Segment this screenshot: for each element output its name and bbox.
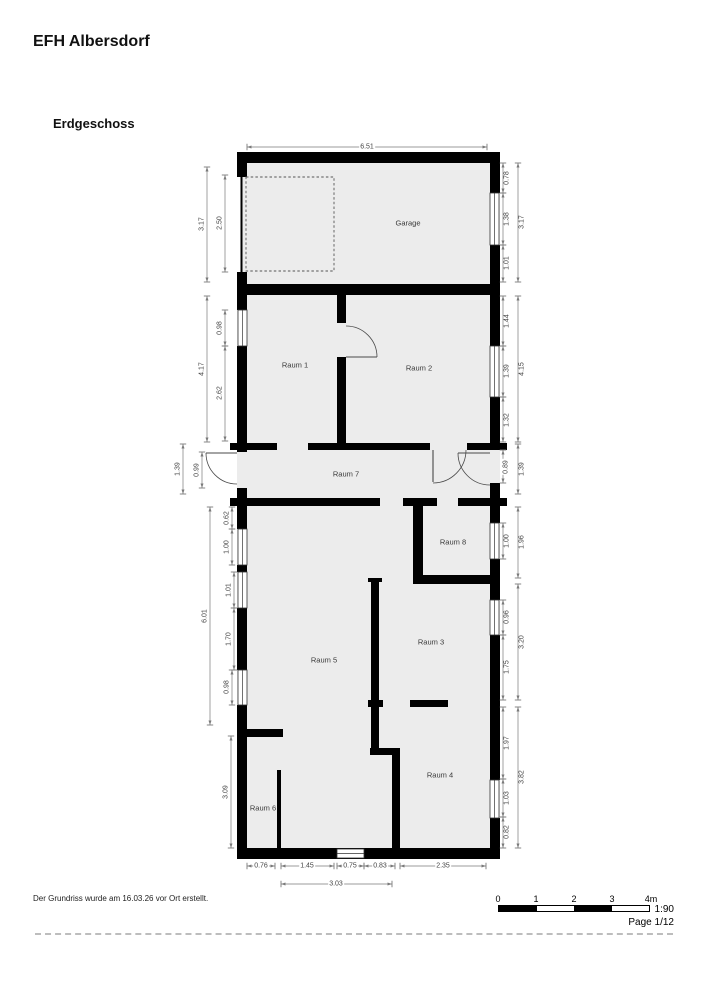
dim-label: 1.70 (226, 631, 233, 647)
dim-label: 0.96 (504, 609, 511, 625)
dim-label: 1.96 (519, 534, 526, 550)
scale-bar-graphic (498, 905, 650, 912)
dim-label: 1.03 (504, 790, 511, 806)
dim-label: 1.45 (299, 863, 315, 870)
scale-tick-label: 4m (645, 895, 658, 904)
dim-label: 0.98 (224, 679, 231, 695)
dim-label: 3.20 (519, 634, 526, 650)
dim-label: 0.82 (504, 824, 511, 840)
dim-label: 3.82 (519, 769, 526, 785)
dim-label: 0.62 (224, 510, 231, 526)
scale-tick-label: 2 (571, 895, 576, 904)
dim-label: 1.01 (226, 582, 233, 598)
dashed-separator (35, 933, 673, 935)
dim-label: 0.83 (372, 863, 388, 870)
room-label-raum3: Raum 3 (418, 638, 444, 646)
scale-tick-label: 0 (495, 895, 500, 904)
dim-label: 0.98 (217, 320, 224, 336)
dim-label: 2.62 (217, 385, 224, 401)
dim-label: 0.99 (194, 462, 201, 478)
dim-label: 4.17 (199, 361, 206, 377)
dim-label: 1.00 (224, 539, 231, 555)
dim-label: 1.39 (504, 363, 511, 379)
dim-label: 6.51 (359, 144, 375, 151)
dim-label: 3.03 (328, 881, 344, 888)
dim-label: 1.38 (504, 211, 511, 227)
dim-label: 1.32 (504, 412, 511, 428)
dim-label: 6.01 (202, 608, 209, 624)
scale-tick-label: 3 (609, 895, 614, 904)
room-label-raum7: Raum 7 (333, 470, 359, 478)
dim-label: 0.76 (253, 863, 269, 870)
garage-door-opening (237, 177, 243, 272)
room-label-raum5: Raum 5 (311, 656, 337, 664)
dim-label: 2.50 (217, 215, 224, 231)
dim-label: 3.09 (223, 784, 230, 800)
room-label-raum4: Raum 4 (427, 771, 453, 779)
dim-label: 2.35 (435, 863, 451, 870)
dim-label: 1.01 (504, 255, 511, 271)
footer-note: Der Grundriss wurde am 16.03.26 vor Ort … (33, 894, 208, 903)
dim-label: 0.78 (504, 170, 511, 186)
room-label-raum8: Raum 8 (440, 538, 466, 546)
dim-label: 0.75 (342, 863, 358, 870)
dim-label: 4.15 (519, 361, 526, 377)
room-label-raum2: Raum 2 (406, 364, 432, 372)
dim-label: 3.17 (519, 214, 526, 230)
floorplan-page: EFH Albersdorf Erdgeschoss (0, 0, 707, 1000)
floor-plan-drawing (0, 0, 707, 1000)
page-number: Page 1/12 (628, 917, 674, 928)
dim-label: 1.44 (504, 313, 511, 329)
dim-label: 1.75 (504, 659, 511, 675)
dim-label: 1.39 (519, 461, 526, 477)
dim-label: 0.89 (503, 459, 510, 475)
dim-label: 1.39 (175, 461, 182, 477)
dim-label: 3.17 (199, 216, 206, 232)
room-label-garage: Garage (395, 219, 420, 227)
dim-label: 1.97 (504, 735, 511, 751)
room-label-raum6: Raum 6 (250, 804, 276, 812)
scale-tick-label: 1 (533, 895, 538, 904)
room-label-raum1: Raum 1 (282, 361, 308, 369)
scale-ratio: 1:90 (655, 904, 674, 915)
dim-label: 1.00 (504, 533, 511, 549)
